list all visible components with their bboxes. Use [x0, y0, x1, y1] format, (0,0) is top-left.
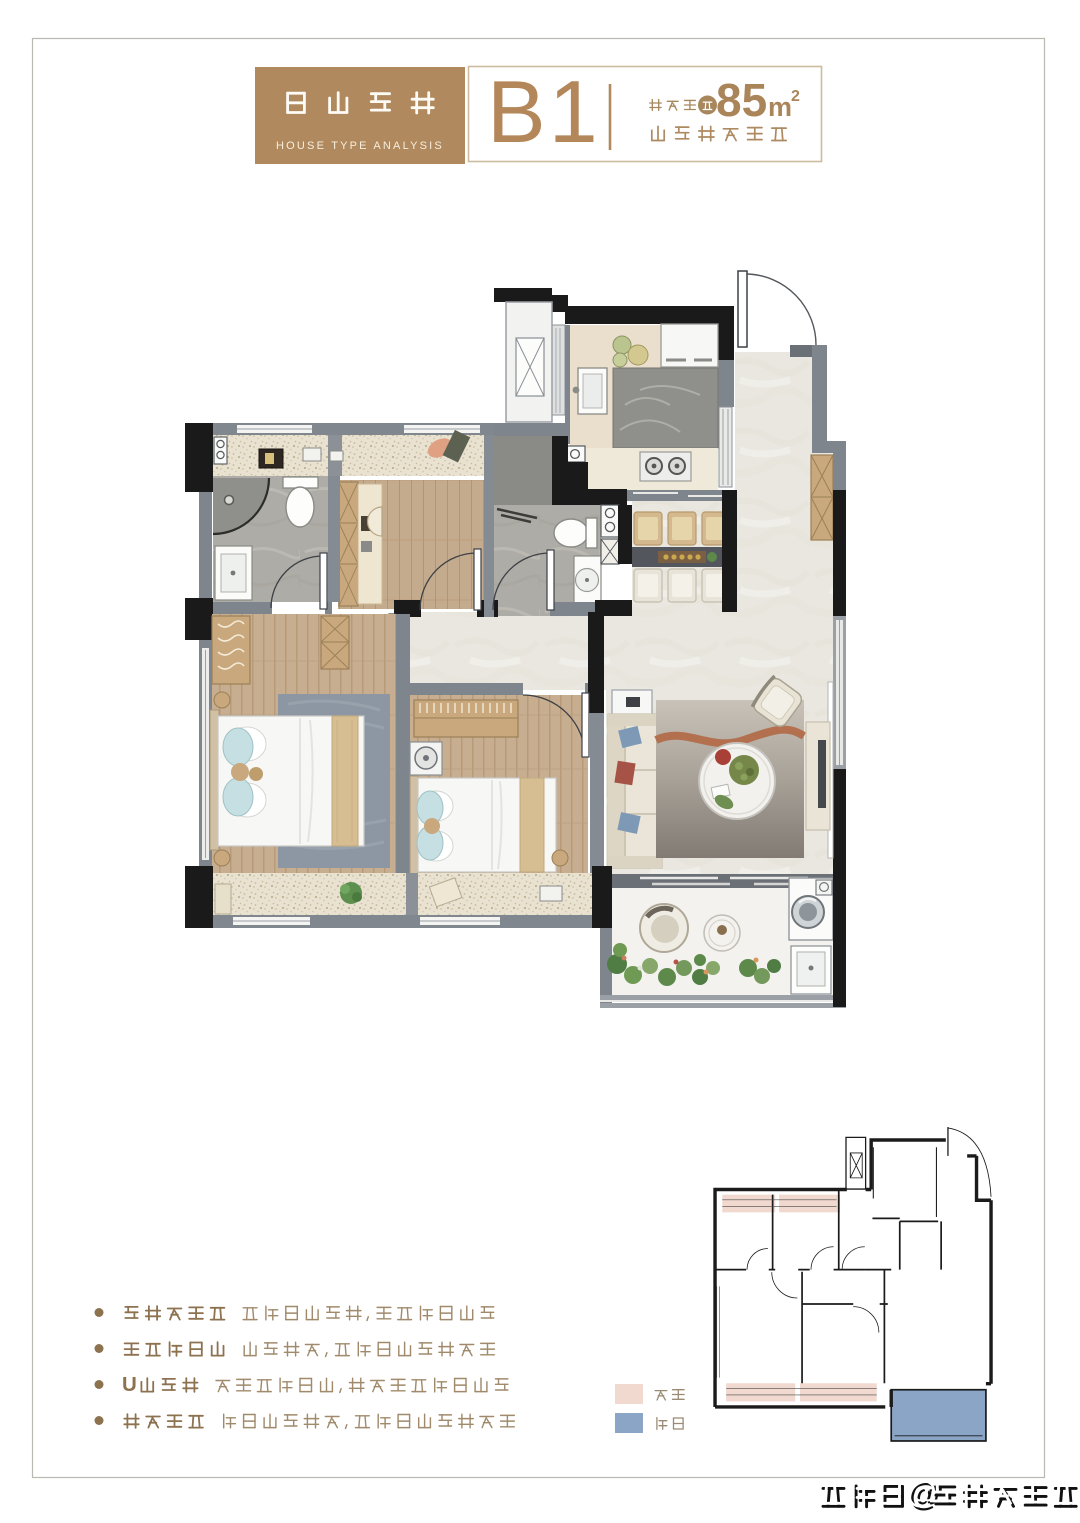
svg-text:HOUSE TYPE ANALYSIS: HOUSE TYPE ANALYSIS [276, 140, 444, 152]
svg-text:m: m [768, 92, 792, 122]
svg-text:B1: B1 [487, 62, 601, 161]
svg-text:U: U [122, 1373, 137, 1396]
svg-text:2: 2 [791, 88, 800, 105]
svg-text:85: 85 [716, 74, 767, 126]
